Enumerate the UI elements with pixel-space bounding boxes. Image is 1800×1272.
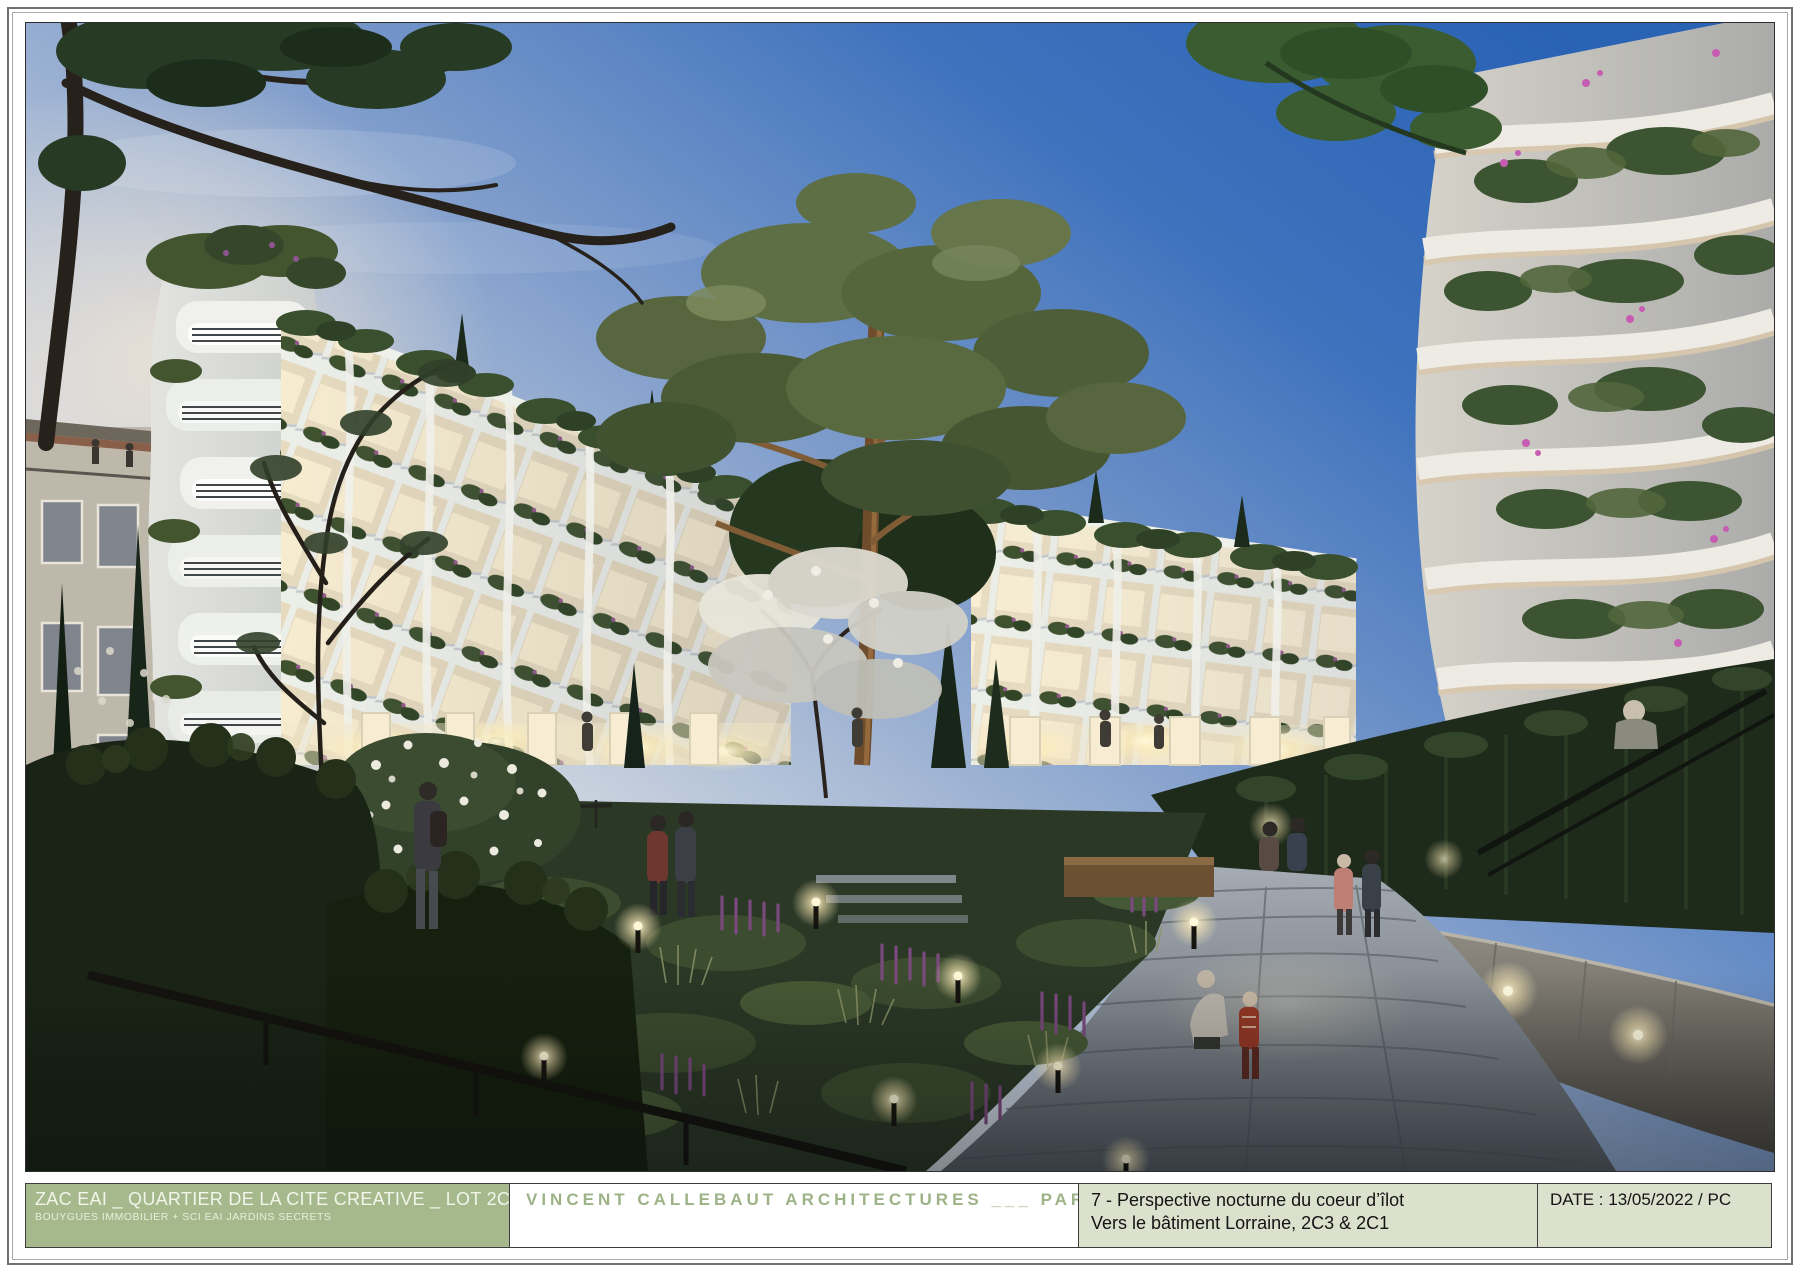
architect-cell: VINCENT CALLEBAUT ARCHITECTURES ___ PARI… [509, 1183, 1079, 1248]
drawing-title-line2: Vers le bâtiment Lorraine, 2C3 & 2C1 [1091, 1212, 1527, 1235]
date-cell: DATE : 13/05/2022 / PC [1537, 1183, 1772, 1248]
drawing-title-line1: 7 - Perspective nocturne du coeur d’îlot [1091, 1189, 1527, 1212]
architect-name: VINCENT CALLEBAUT ARCHITECTURES ___ PARI… [526, 1190, 1079, 1209]
drawing-sheet: ZAC EAI _ QUARTIER DE LA CITE CREATIVE _… [0, 0, 1800, 1272]
planter-bench [1064, 857, 1214, 897]
drawing-title-cell: 7 - Perspective nocturne du coeur d’îlot… [1078, 1183, 1538, 1248]
title-block: ZAC EAI _ QUARTIER DE LA CITE CREATIVE _… [25, 1183, 1775, 1248]
date-label: DATE : 13/05/2022 / PC [1550, 1190, 1731, 1209]
architectural-rendering [25, 22, 1775, 1172]
vignette [26, 971, 1774, 1171]
project-subtitle: BOUYGUES IMMOBILIER + SCI EAI JARDINS SE… [35, 1210, 499, 1224]
project-cell: ZAC EAI _ QUARTIER DE LA CITE CREATIVE _… [25, 1183, 510, 1248]
rendering-scene [26, 23, 1774, 1171]
project-title: ZAC EAI _ QUARTIER DE LA CITE CREATIVE _… [35, 1189, 499, 1210]
